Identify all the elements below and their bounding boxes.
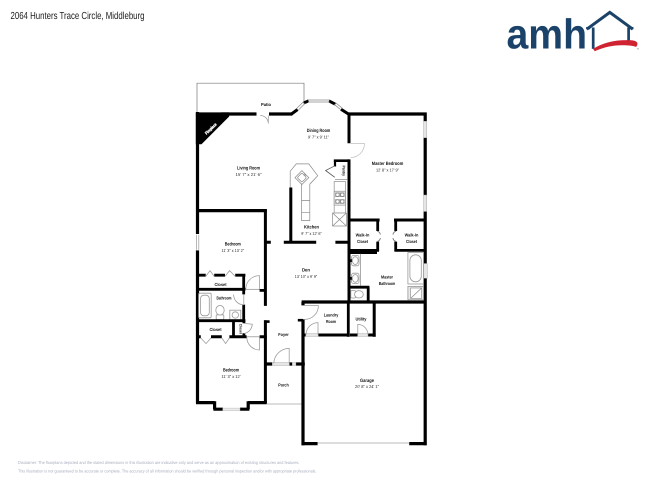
svg-text:Pantry: Pantry xyxy=(342,166,347,177)
svg-text:Den: Den xyxy=(302,268,310,274)
svg-text:Disclaimer: The floorplans dep: Disclaimer: The floorplans depicted and … xyxy=(18,460,300,465)
svg-text:20' 8" x 24' 1": 20' 8" x 24' 1" xyxy=(355,384,379,389)
svg-text:Closet: Closet xyxy=(215,282,227,287)
svg-text:Kitchen: Kitchen xyxy=(304,225,319,231)
svg-text:Closet: Closet xyxy=(357,239,369,244)
svg-text:9' 7" x 9' 11": 9' 7" x 9' 11" xyxy=(308,135,329,140)
svg-text:Bedroom: Bedroom xyxy=(225,242,241,248)
svg-text:Walk-In: Walk-In xyxy=(405,233,419,238)
svg-text:Bedroom: Bedroom xyxy=(223,368,239,374)
svg-text:Closet: Closet xyxy=(210,327,222,332)
svg-text:2064 Hunters Trace Circle, Mid: 2064 Hunters Trace Circle, Middleburg xyxy=(11,11,145,22)
svg-text:Laundry: Laundry xyxy=(324,313,339,318)
svg-text:11' 3" x 12': 11' 3" x 12' xyxy=(222,374,241,379)
svg-text:9' 7" x 12' 6": 9' 7" x 12' 6" xyxy=(301,231,322,236)
svg-text:Foyer: Foyer xyxy=(278,332,289,337)
svg-text:13' 10" x 9' 9": 13' 10" x 9' 9" xyxy=(295,274,318,279)
svg-text:15' 7" x 21' 6": 15' 7" x 21' 6" xyxy=(236,172,263,177)
svg-text:Porch: Porch xyxy=(278,383,289,388)
svg-text:Living Room: Living Room xyxy=(237,166,260,172)
svg-text:12' 8" x 17' 9": 12' 8" x 17' 9" xyxy=(376,168,399,173)
svg-text:Walk-In: Walk-In xyxy=(356,233,370,238)
svg-text:amh: amh xyxy=(507,11,588,58)
svg-text:Closet: Closet xyxy=(238,324,242,335)
svg-text:Master: Master xyxy=(381,275,393,280)
svg-text:Dining Room: Dining Room xyxy=(307,128,331,134)
svg-text:This illustration is not guara: This illustration is not guaranteed to b… xyxy=(18,469,317,474)
svg-text:Room: Room xyxy=(326,319,336,324)
svg-text:Master Bedroom: Master Bedroom xyxy=(372,161,404,167)
svg-text:Patio: Patio xyxy=(261,102,271,107)
svg-text:Bathroom: Bathroom xyxy=(379,281,396,286)
svg-text:Utility: Utility xyxy=(356,317,367,322)
svg-text:Closet: Closet xyxy=(406,239,418,244)
svg-text:11' 3" x 13' 2": 11' 3" x 13' 2" xyxy=(222,248,245,253)
svg-text:Bathroom: Bathroom xyxy=(217,296,232,301)
